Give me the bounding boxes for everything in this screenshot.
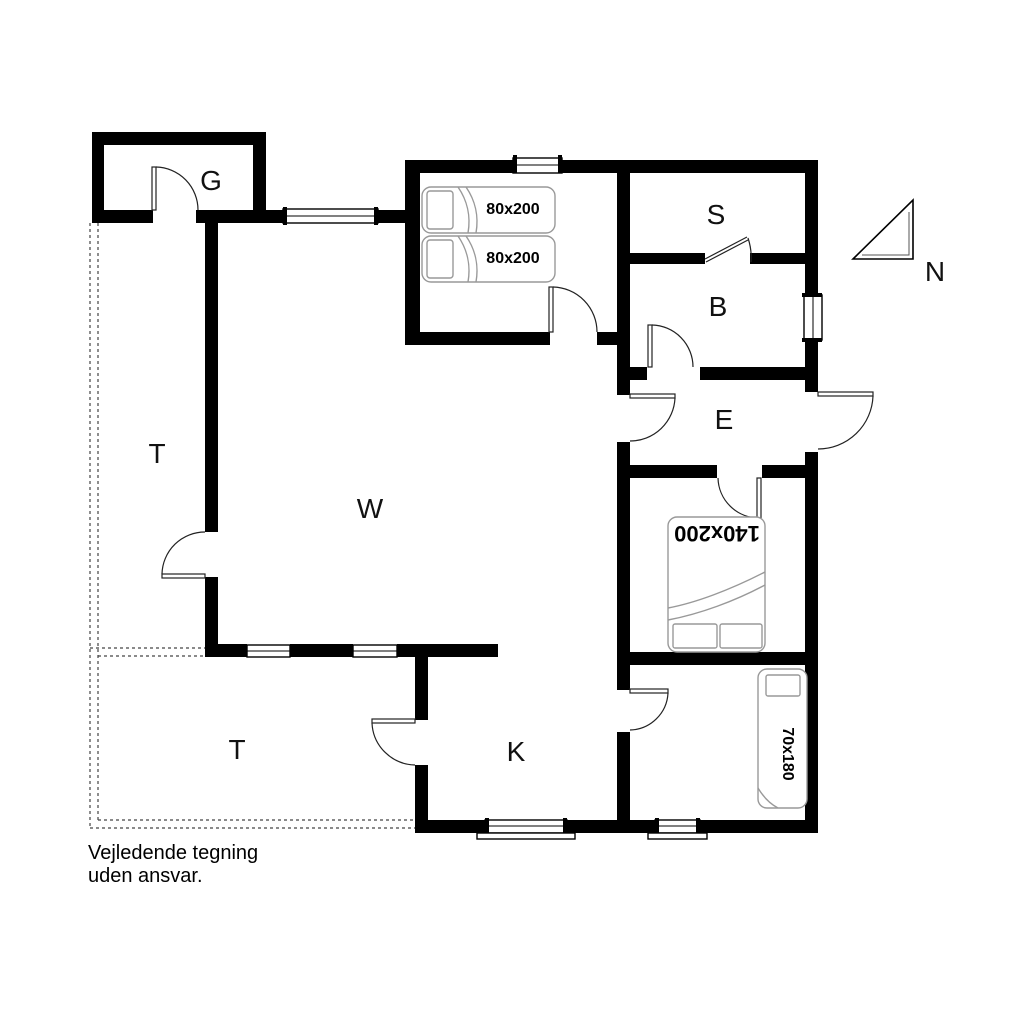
- wall-segment: [630, 253, 705, 264]
- wall-segment: [805, 340, 818, 392]
- wall-segment: [805, 160, 818, 297]
- wall-segment: [397, 644, 498, 657]
- wall-segment: [567, 820, 655, 833]
- pillow: [766, 675, 800, 696]
- wall-segment: [630, 465, 717, 478]
- wall-segment: [750, 253, 808, 264]
- wall-segment: [92, 210, 153, 223]
- wall-segment: [196, 210, 283, 223]
- door-g: [152, 167, 198, 210]
- door-small-room: [630, 689, 668, 730]
- terrace-dash-outer: [90, 223, 415, 828]
- bed-size-label: 70x180: [778, 727, 796, 780]
- terrace-boundary: [90, 223, 415, 828]
- window: [802, 293, 822, 342]
- door-k-terrace: [372, 719, 415, 765]
- wall-segment: [205, 577, 218, 644]
- wall-segment: [762, 465, 808, 478]
- room-label-s: S: [707, 199, 726, 231]
- room-label-b: B: [709, 291, 728, 323]
- room-label-g: G: [200, 165, 222, 197]
- wall-segment: [700, 820, 818, 833]
- wall-segment: [415, 820, 485, 833]
- room-label-k: K: [507, 736, 526, 768]
- floor-plan: G S B E W T T K 80x200 80x200 140x200 70…: [0, 0, 1024, 1024]
- wall-segment: [92, 132, 265, 145]
- wall-segment: [617, 732, 630, 820]
- disclaimer-line-1: Vejledende tegning: [88, 842, 258, 865]
- window: [283, 207, 378, 225]
- bed-size-label: 80x200: [486, 201, 539, 219]
- disclaimer-text: Vejledende tegning uden ansvar.: [88, 842, 258, 888]
- wall-segment: [415, 644, 428, 720]
- wall-segment: [253, 132, 266, 223]
- bed-size-label: 80x200: [486, 250, 539, 268]
- wall-segment: [617, 652, 818, 665]
- wall-segment: [92, 132, 104, 223]
- pillow: [720, 624, 762, 648]
- room-label-t-upper: T: [148, 438, 165, 470]
- door-twin-bedroom: [549, 287, 597, 332]
- wall-segment: [597, 332, 617, 345]
- disclaimer-line-2: uden ansvar.: [88, 865, 258, 888]
- wall-segment: [630, 367, 647, 380]
- door-entrance: [818, 392, 873, 449]
- room-label-t-lower: T: [228, 734, 245, 766]
- door-w-e: [630, 394, 675, 441]
- wall-segment: [290, 644, 353, 657]
- window: [353, 645, 397, 657]
- room-label-e: E: [715, 404, 734, 436]
- wall-segment: [560, 160, 818, 173]
- wall-segment: [405, 160, 515, 173]
- door-w-terrace: [162, 532, 205, 578]
- north-arrow-icon: [853, 200, 913, 259]
- door-s-b: [705, 237, 751, 262]
- window: [247, 645, 290, 657]
- door-double-bedroom: [718, 478, 761, 518]
- north-label: N: [925, 256, 945, 288]
- wall-segment: [405, 332, 550, 345]
- window: [648, 818, 707, 839]
- room-label-w: W: [357, 493, 383, 525]
- pillow: [427, 240, 453, 278]
- wall-segment: [700, 367, 808, 380]
- beds: [422, 187, 807, 808]
- wall-segment: [617, 160, 630, 395]
- window: [477, 818, 575, 839]
- wall-segment: [617, 442, 630, 652]
- pillow: [673, 624, 717, 648]
- wall-segment: [205, 223, 218, 532]
- window: [513, 155, 562, 173]
- door-b: [648, 325, 693, 367]
- wall-segment: [405, 160, 420, 345]
- wall-segment: [205, 644, 247, 657]
- bed-size-label: 140x200: [674, 520, 760, 546]
- pillow: [427, 191, 453, 229]
